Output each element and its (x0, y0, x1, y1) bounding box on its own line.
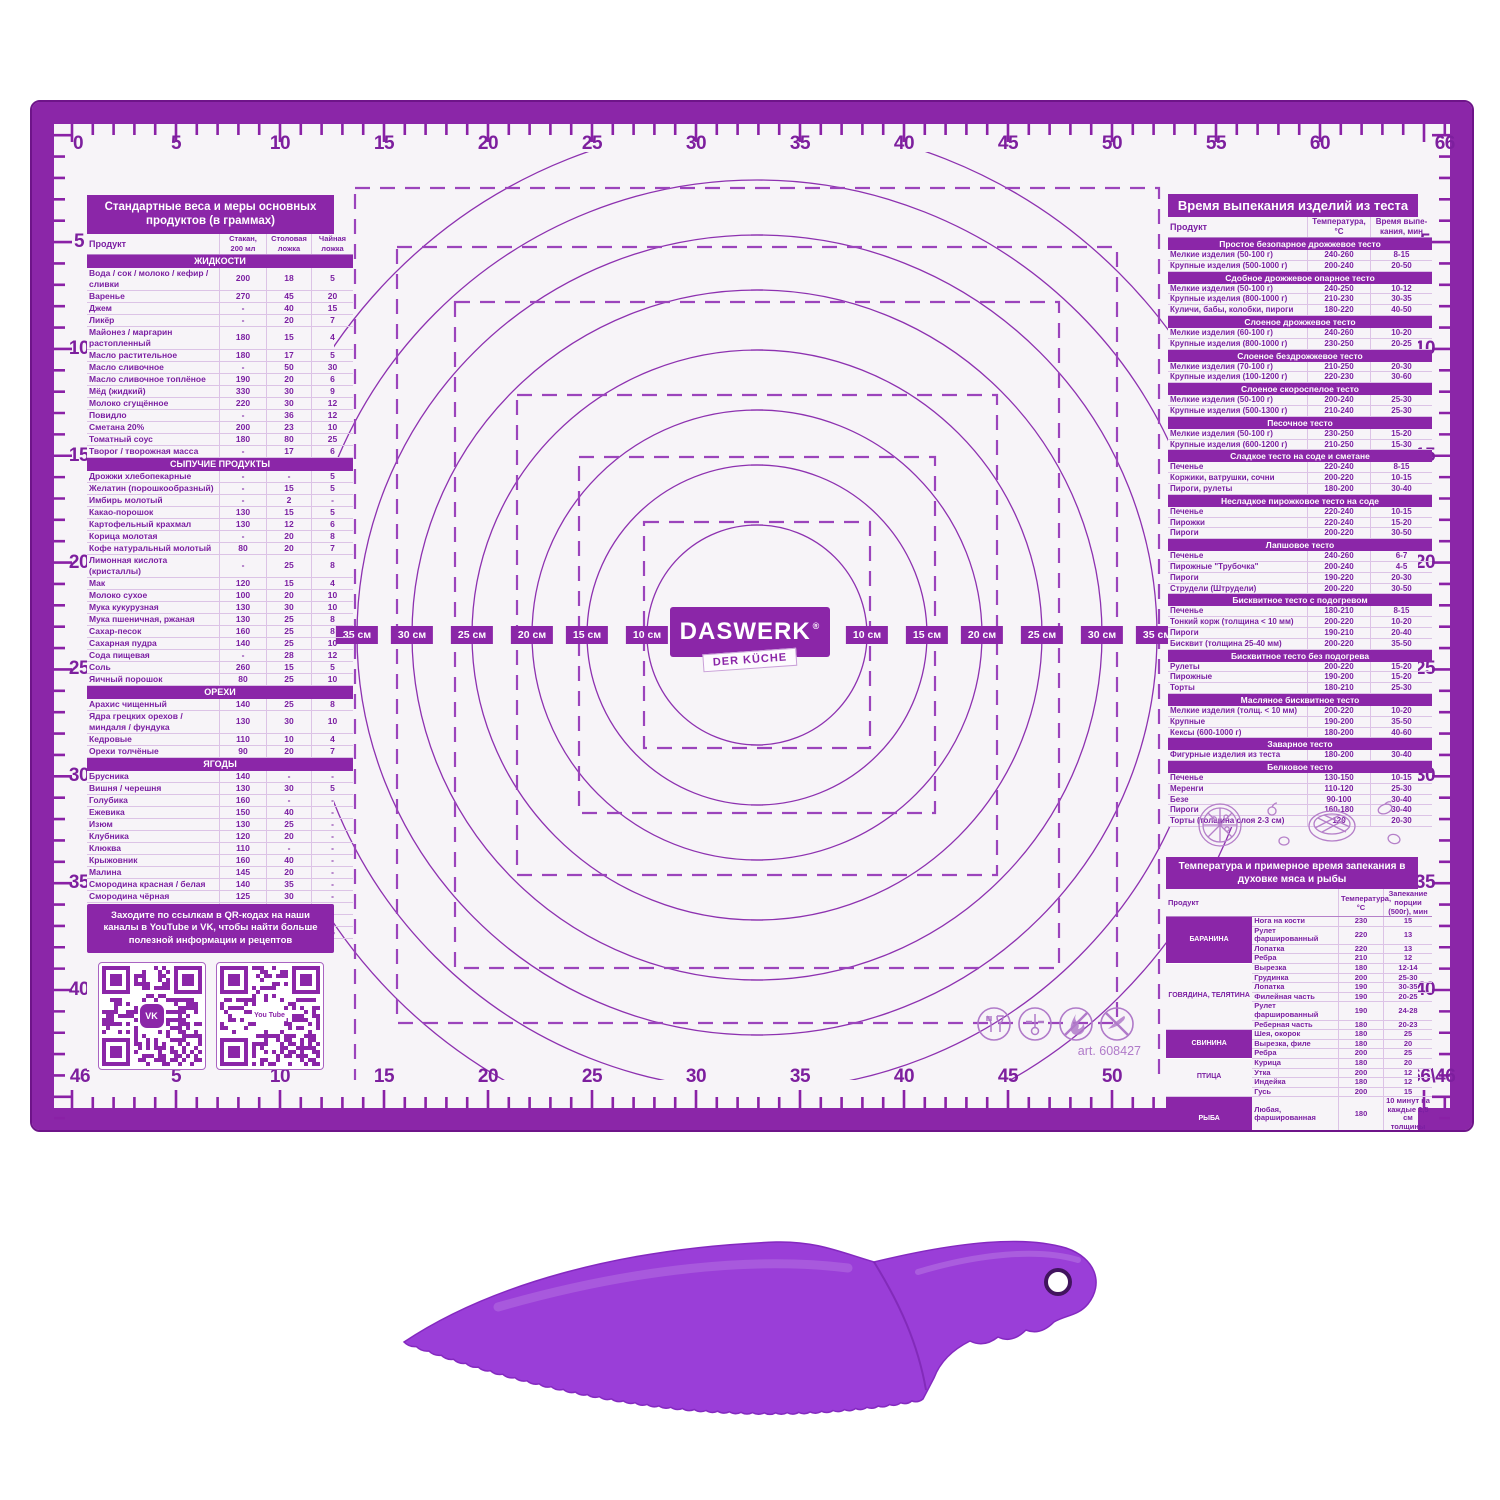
circle-diameter-label: 15 см (566, 626, 608, 644)
ruler-number: 50 (1102, 133, 1122, 155)
table-row: Пирожки220-24015-20 (1168, 517, 1432, 528)
meat-group-label: БАРАНИНА (1166, 917, 1252, 964)
ruler-number: 20 (478, 133, 498, 155)
table-row: Крупные изделия (500-1300 г)210-24025-30 (1168, 405, 1432, 416)
qr-panel: Заходите по ссылкам в QR-кодах на наши к… (87, 904, 334, 1070)
table-row: Пироги190-22020-30 (1168, 572, 1432, 583)
brand-wordmark: DASWERK (680, 618, 811, 646)
circle-diameter-label: 15 см (906, 626, 948, 644)
section-band: Сдобное дрожжевое опарное тесто (1168, 271, 1432, 284)
article-number: art. 608427 (965, 1044, 1145, 1058)
table-row: ГОВЯДИНА, ТЕЛЯТИНАВырезка18012-14 (1166, 963, 1432, 973)
table-row: Пирожные "Трубочка"200-2404-5 (1168, 561, 1432, 572)
table-row: Дрожжи хлебопекарные--5 (87, 471, 353, 483)
no-cutting-icon (1098, 1005, 1136, 1043)
table-row: Сахарная пудра1402510 (87, 637, 353, 649)
section-band: ЖИДКОСТИ (87, 254, 353, 268)
table-row: Печенье220-24010-15 (1168, 507, 1432, 517)
circle-diameter-label: 25 см (1021, 626, 1063, 644)
table-row: Коржики, ватрушки, сочни200-22010-15 (1168, 473, 1432, 484)
table-row: Соль260155 (87, 661, 353, 673)
table-row: Повидло-3612 (87, 409, 353, 421)
col-header: Продукт (1168, 217, 1308, 238)
table-row: Куличи, бабы, колобки, пироги180-22040-5… (1168, 305, 1432, 316)
table-row: Масло растительное180175 (87, 349, 353, 361)
table-row: Масло сливочное-5030 (87, 361, 353, 373)
table-row: Джем-4015 (87, 302, 353, 314)
table-row: Томатный соус1808025 (87, 433, 353, 445)
section-band: Масляное бисквитное тесто (1168, 693, 1432, 706)
table-row: Печенье180-2108-15 (1168, 606, 1432, 616)
table-row: Мелкие изделия (50-100 г)200-24025-30 (1168, 395, 1432, 405)
table-row: Пирожные190-20015-20 (1168, 672, 1432, 683)
ruler-number: 30 (686, 1066, 706, 1088)
ruler-number: 45 (998, 1066, 1018, 1088)
table-row: Мелкие изделия (70-100 г)210-25020-30 (1168, 362, 1432, 372)
circle-diameter-label: 30 см (391, 626, 433, 644)
ruler-number: 40 (894, 1066, 914, 1088)
table-row: Фигурные изделия из теста180-20030-40 (1168, 750, 1432, 760)
ruler-number: 60 (1310, 133, 1330, 155)
table-row: Печенье220-2408-15 (1168, 462, 1432, 472)
table-row: Мак120154 (87, 577, 353, 589)
section-band: Сладкое тесто на соде и сметане (1168, 450, 1432, 463)
table-row: Клюква110-- (87, 842, 353, 854)
table-row: Вишня / черешня130305 (87, 782, 353, 794)
table-row: Вода / сок / молоко / кефир / сливки2001… (87, 268, 353, 291)
table-row: Ликёр-207 (87, 314, 353, 326)
section-band: Слоеное дрожжевое тесто (1168, 315, 1432, 328)
qr-panel-text: Заходите по ссылкам в QR-кодах на наши к… (87, 904, 334, 953)
ruler-number: 40 (894, 133, 914, 155)
ruler-number: 66 (1435, 133, 1455, 155)
circle-diameter-label: 10 см (846, 626, 888, 644)
table-row: Крупные190-20035-50 (1168, 716, 1432, 727)
table-row: Печенье130-15010-15 (1168, 773, 1432, 783)
berry-doodle (1268, 807, 1276, 815)
table-row: Мелкие изделия (60-100 г)240-26010-20 (1168, 328, 1432, 338)
meat-table: Продукт Температура, °С Запекание порции… (1166, 889, 1432, 1132)
table-row: СВИНИНАШея, окорок18025 (1166, 1030, 1432, 1040)
section-band: ЯГОДЫ (87, 757, 353, 771)
table-row: Какао-порошок130155 (87, 506, 353, 518)
table-row: Мёд (жидкий)330309 (87, 385, 353, 397)
table-row: Пироги, рулеты180-20030-40 (1168, 483, 1432, 494)
table-row: Тонкий корж (толщина < 10 мм)200-22010-2… (1168, 617, 1432, 628)
meat-group-label: ПТИЦА (1166, 1058, 1252, 1096)
table-row: ПТИЦАКурица18020 (1166, 1058, 1432, 1068)
table-row: Кексы (600-1000 г)180-20040-60 (1168, 727, 1432, 738)
ruler-number: 15 (374, 133, 394, 155)
table-row: Ядра грецких орехов / миндаля / фундука1… (87, 710, 353, 733)
circle-diameter-label: 20 см (511, 626, 553, 644)
table-row: Сметана 20%2002310 (87, 421, 353, 433)
circle-diameter-label: 25 см (451, 626, 493, 644)
table-row: Лимонная кислота (кристаллы)-258 (87, 554, 353, 577)
table-row: Крыжовник16040- (87, 854, 353, 866)
section-band: Слоеное бездрожжевое тесто (1168, 349, 1432, 362)
table-row: Смородина красная / белая14035- (87, 878, 353, 890)
ruler-number: 25 (582, 133, 602, 155)
safety-icons-block: art. 608427 (965, 1005, 1145, 1058)
ruler-number: 50 (1102, 1066, 1122, 1088)
ruler-number: 25 (582, 1066, 602, 1088)
ruler-number: 15 (374, 1066, 394, 1088)
ruler-number: 20 (478, 1066, 498, 1088)
table-row: Торты180-21025-30 (1168, 683, 1432, 694)
section-band: Лапшовое тесто (1168, 539, 1432, 552)
meat-roasting-panel: Температура и примерное время запекания … (1166, 857, 1418, 1132)
weights-title: Стандартные веса и меры основных продукт… (87, 195, 334, 234)
product-photo: Стандартные веса и меры основных продукт… (0, 0, 1500, 1500)
table-row: Смородина чёрная12530- (87, 890, 353, 902)
table-row: Кедровые110104 (87, 733, 353, 745)
section-band: Белковое тесто (1168, 761, 1432, 774)
table-row: Желатин (порошкообразный)-155 (87, 482, 353, 494)
baking-times-panel: Время выпекания изделий из теста Продукт… (1168, 194, 1418, 827)
table-row: Печенье240-2606-7 (1168, 551, 1432, 561)
food-grade-icon (975, 1005, 1013, 1043)
registered-mark-icon: ® (813, 621, 821, 631)
weights-panel: Стандартные веса и меры основных продукт… (87, 195, 334, 939)
table-row: Крупные изделия (100-1200 г)220-23030-60 (1168, 372, 1432, 383)
table-row: Малина14520- (87, 866, 353, 878)
table-row: Пироги200-22030-50 (1168, 528, 1432, 539)
baking-table: Продукт Температура, °С Время выпе- кани… (1168, 217, 1432, 827)
col-header: Запекание порции (500г), мин (1384, 889, 1433, 917)
col-header: Время выпе- кания, мин (1371, 217, 1433, 238)
table-row: Яичный порошок802510 (87, 673, 353, 685)
dough-knife (378, 1212, 1118, 1447)
table-row: Мелкие изделия (50-100 г)240-25010-12 (1168, 284, 1432, 294)
ruler-number: 0 (73, 133, 83, 155)
table-row: Струдели (Штрудели)200-22030-50 (1168, 583, 1432, 594)
ruler-number: 30 (686, 133, 706, 155)
table-row: Изюм13025- (87, 818, 353, 830)
section-band: Простое безопарное дрожжевое тесто (1168, 238, 1432, 251)
col-header: Чайная ложка (312, 234, 354, 255)
ruler-number: 10 (270, 133, 290, 155)
baking-title: Время выпекания изделий из теста (1168, 194, 1418, 217)
col-header: Стакан, 200 мл (220, 234, 267, 255)
no-open-flame-icon (1057, 1005, 1095, 1043)
table-row: Крупные изделия (500-1000 г)200-24020-50 (1168, 260, 1432, 271)
table-row: Бисквит (толщина 25-40 мм)200-22035-50 (1168, 638, 1432, 649)
table-row: Мелкие изделия (толщ. < 10 мм)200-22010-… (1168, 706, 1432, 716)
col-header: Температура, °С (1308, 217, 1371, 238)
ruler-number: 45 (998, 133, 1018, 155)
section-band: Слоеное скороспелое тесто (1168, 383, 1432, 396)
table-row: Молоко сгущённое2203012 (87, 397, 353, 409)
ruler-number: 55 (1206, 133, 1226, 155)
table-row: Крупные изделия (800-1000 г)230-25020-25 (1168, 338, 1432, 349)
table-row: Крупные изделия (600-1200 г)210-25015-30 (1168, 439, 1432, 450)
youtube-logo: You Tube (252, 1011, 287, 1021)
col-header: Столовая ложка (267, 234, 312, 255)
col-header: Температура, °С (1339, 889, 1384, 917)
section-band: СЫПУЧИЕ ПРОДУКТЫ (87, 457, 353, 471)
table-row: Мука кукурузная1303010 (87, 601, 353, 613)
table-row: Сода пищевая-2812 (87, 649, 353, 661)
ruler-number: 5 (171, 133, 181, 155)
section-band: Бисквитное тесто с подогревом (1168, 594, 1432, 607)
table-row: Корица молотая-208 (87, 530, 353, 542)
table-row: Крупные изделия (800-1000 г)210-23030-35 (1168, 294, 1432, 305)
ruler-number: 5 (74, 231, 84, 253)
table-row: БАРАНИНАНога на кости23015 (1166, 917, 1432, 927)
circle-diameter-label: 20 см (961, 626, 1003, 644)
table-row: Масло сливочное топлёное190206 (87, 373, 353, 385)
brand-logo: DASWERK® DER KÜCHE (670, 607, 830, 657)
knife-hang-hole (1046, 1270, 1070, 1294)
vk-logo: VK (140, 1004, 164, 1028)
meat-group-label: РЫБА (1166, 1097, 1252, 1132)
brand-name: DASWERK® (670, 607, 830, 657)
qr-code-youtube: You Tube (216, 962, 324, 1070)
meat-group-label: СВИНИНА (1166, 1030, 1252, 1059)
section-band: Несладкое пирожковое тесто на соде (1168, 494, 1432, 507)
meat-group-label: ГОВЯДИНА, ТЕЛЯТИНА (1166, 963, 1252, 1029)
section-band: Песочное тесто (1168, 416, 1432, 429)
section-band: ОРЕХИ (87, 685, 353, 699)
ruler-number: 35 (790, 1066, 810, 1088)
table-row: Творог / творожная масса-176 (87, 445, 353, 457)
circle-diameter-label: 10 см (626, 626, 668, 644)
table-row: Сахар-песок160258 (87, 625, 353, 637)
baking-mat: Стандартные веса и меры основных продукт… (30, 100, 1474, 1132)
table-row: Ежевика15040- (87, 806, 353, 818)
table-row: Майонез / маргарин растопленный180154 (87, 326, 353, 349)
col-header: Продукт (1166, 889, 1339, 917)
meat-title: Температура и примерное время запекания … (1166, 857, 1418, 889)
table-row: Картофельный крахмал130126 (87, 518, 353, 530)
table-row: Мелкие изделия (50-100 г)240-2608-15 (1168, 250, 1432, 260)
table-row: Мелкие изделия (50-100 г)230-25015-20 (1168, 429, 1432, 439)
table-row: Голубика160-- (87, 794, 353, 806)
table-row: Орехи толчёные90207 (87, 745, 353, 757)
weights-table: Продукт Стакан, 200 мл Столовая ложка Ча… (87, 234, 353, 939)
table-row: Арахис чищенный140258 (87, 699, 353, 711)
table-row: Мука пшеничная, ржаная130258 (87, 613, 353, 625)
section-band: Заварное тесто (1168, 738, 1432, 751)
table-row: Варенье2704520 (87, 290, 353, 302)
table-row: РЫБАЛюбая, фаршированная18010 минут на к… (1166, 1097, 1432, 1132)
table-row: Кофе натуральный молотый80207 (87, 542, 353, 554)
table-row: Меренги110-12025-30 (1168, 783, 1432, 794)
col-header: Продукт (87, 234, 220, 255)
ruler-number: 35 (790, 133, 810, 155)
temperature-range-icon (1016, 1005, 1054, 1043)
section-band: Бисквитное тесто без подогрева (1168, 649, 1432, 662)
table-row: Пироги190-21020-40 (1168, 627, 1432, 638)
food-doodles (1182, 795, 1412, 851)
table-row: Брусника140-- (87, 771, 353, 783)
table-row: Рулеты200-22015-20 (1168, 662, 1432, 672)
circle-diameter-label: 30 см (1081, 626, 1123, 644)
table-row: Клубника12020- (87, 830, 353, 842)
qr-code-vk: VK (98, 962, 206, 1070)
table-row: Имбирь молотый-2- (87, 494, 353, 506)
table-row: Молоко сухое1002010 (87, 589, 353, 601)
